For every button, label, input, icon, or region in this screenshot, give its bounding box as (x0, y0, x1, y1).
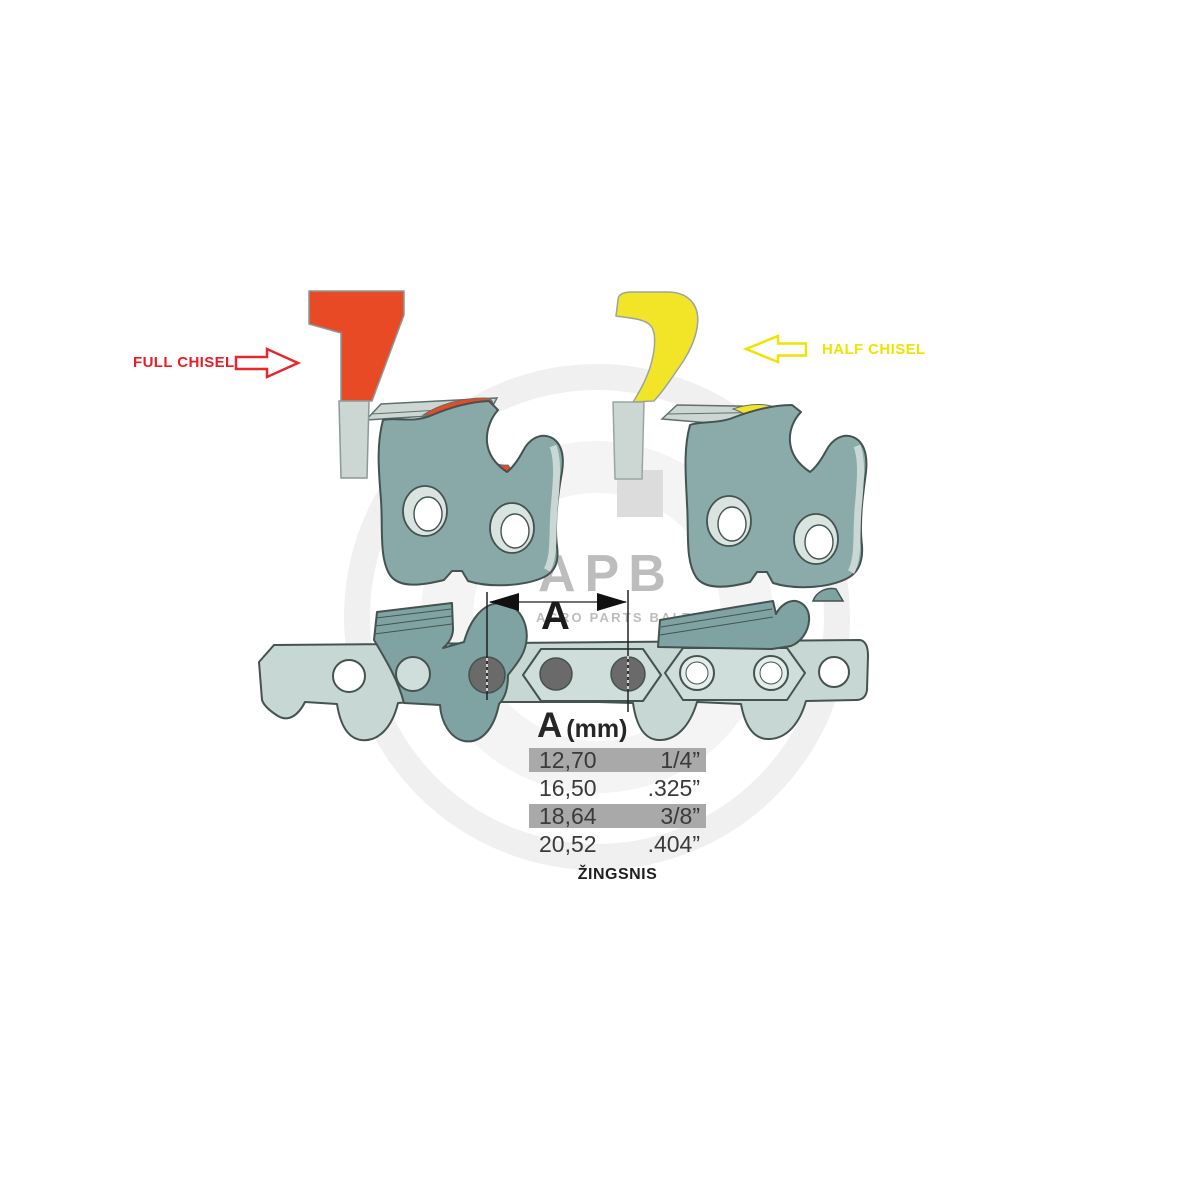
dimension-arrow-right-icon (597, 593, 627, 611)
full-chisel-arrow-icon (236, 349, 298, 377)
half-chisel-arrow-icon (746, 336, 806, 362)
full-chisel-cutter-link (366, 398, 563, 585)
chain-illustration (0, 0, 1188, 1188)
chainsaw-chain-pitch-diagram: APB AGRO PARTS BALTIJA (0, 0, 1188, 1188)
rivet-middle (540, 658, 572, 690)
half-chisel-cutter-link (662, 405, 866, 588)
